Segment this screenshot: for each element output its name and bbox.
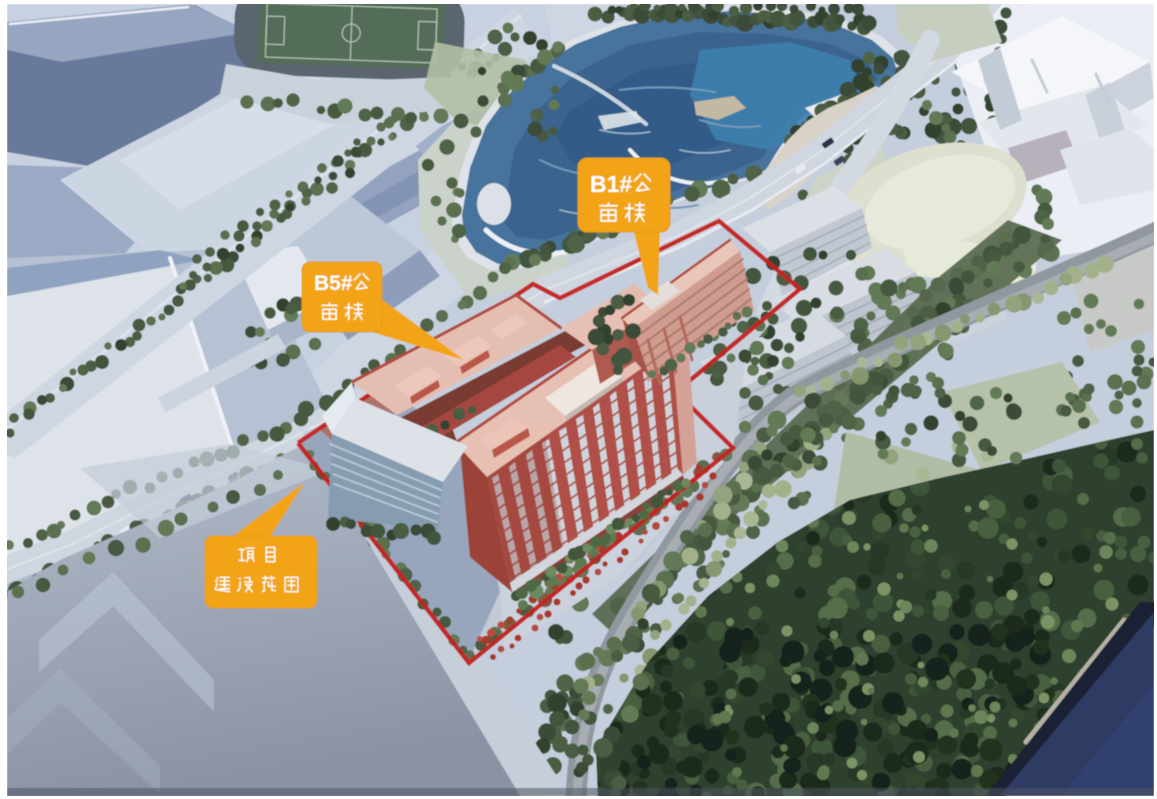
- svg-text:B5#: B5#: [314, 272, 353, 295]
- svg-text:B1#: B1#: [590, 171, 632, 197]
